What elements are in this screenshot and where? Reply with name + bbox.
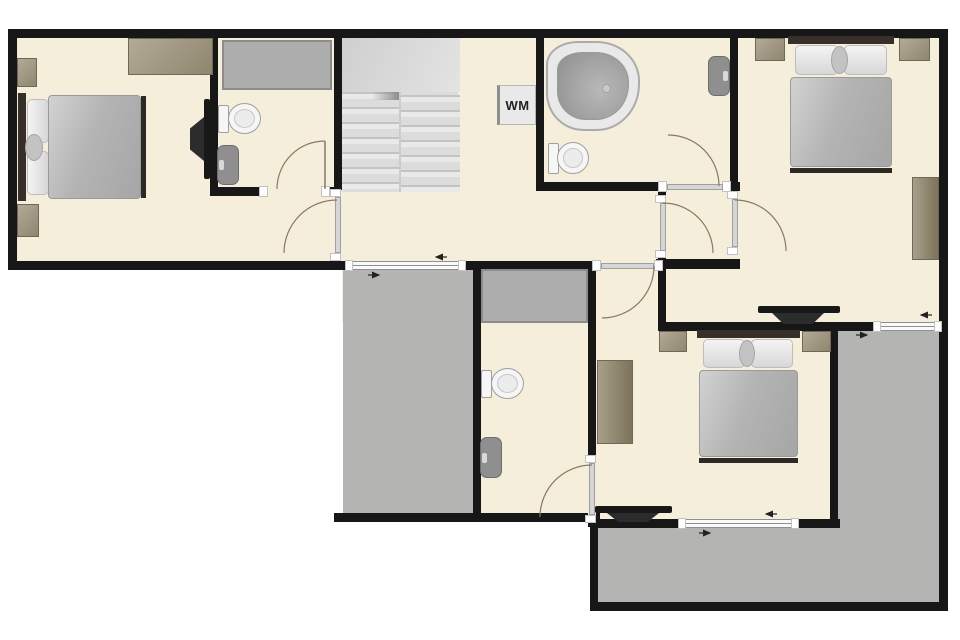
desk-bottom [597, 360, 633, 444]
door-bedroom-top-right-jamb-bottom [727, 247, 738, 255]
bed-tl-footboard [141, 96, 146, 198]
bed-tr-headboard [788, 36, 894, 44]
wall-left [8, 29, 17, 270]
terrace-center [343, 270, 473, 513]
tv-bedroom-bottom-screen [595, 506, 672, 513]
bed-top-left [18, 93, 146, 201]
wall-middle-south [334, 513, 600, 522]
nightstand-tr-2 [899, 38, 930, 61]
wall-right [939, 29, 948, 611]
door-bathtub-room-jamb-left [658, 181, 667, 192]
window-hallway [346, 261, 465, 270]
sink-bottom-tap [482, 453, 487, 463]
window-hallway-jamb-left [345, 260, 353, 271]
bed-bottom [697, 330, 800, 464]
door-bedroom-top-left-jamb-top [330, 189, 341, 197]
door-bedroom-top-right-jamb-top [727, 191, 738, 199]
toilet-bottom-bowl [491, 368, 524, 399]
sink-top-left-tap [219, 160, 224, 170]
nightstand-tr-1 [755, 38, 785, 61]
window-bedroom-top-right [875, 322, 942, 331]
nightstand-br-1 [659, 331, 687, 352]
terrace-bottom [598, 527, 939, 602]
door-bedroom-top-left-jamb-bottom [330, 253, 341, 261]
dresser-top-left [128, 38, 213, 75]
door-bathroom-top-left-jamb-right [321, 186, 330, 197]
sink-top-left [217, 145, 239, 185]
window-bedroom-top-right-jamb-right [934, 321, 942, 332]
window-bedroom-bottom [680, 519, 798, 528]
door-bathroom-top-left-jamb-left [259, 186, 268, 197]
door-vestibule-jamb-bottom [655, 250, 666, 258]
floor-plan: WM [0, 0, 960, 640]
toilet-center-bowl [557, 142, 589, 174]
wall-bedroom-bottom-east [830, 322, 838, 527]
wall-bathtub-room-east [730, 29, 738, 192]
bed-br-footboard [699, 458, 798, 463]
bed-tr-blanket [790, 77, 892, 167]
door-vestibule-jamb-top [655, 195, 666, 203]
door-bedroom-bottom-jamb-left [592, 260, 601, 271]
corner-bathtub [546, 41, 640, 131]
sink-bottom [480, 437, 502, 478]
nightstand-tl-1 [17, 58, 37, 87]
sink-center-tap [723, 71, 728, 81]
bed-br-headboard [697, 330, 800, 338]
window-bedroom-bottom-jamb-right [791, 518, 799, 529]
door-bathroom-bottom-jamb-top [585, 455, 596, 463]
shower-top-left [222, 40, 332, 90]
window-bedroom-bottom-jamb-left [678, 518, 686, 529]
bed-tr-cushion [831, 46, 848, 74]
shower-bottom [481, 269, 588, 323]
wall-terrace-bottom-west [590, 519, 598, 611]
sink-center [708, 56, 730, 96]
bed-tl-blanket [48, 95, 141, 199]
nightstand-br-2 [802, 331, 831, 352]
door-panel-vestibule [660, 203, 666, 251]
tv-bedroom-top-right-screen [758, 306, 840, 313]
bed-br-cushion [739, 340, 755, 367]
door-opening-bathroom-top-left [261, 187, 330, 196]
bed-top-right [788, 36, 894, 175]
washing-machine: WM [497, 85, 536, 125]
stair-step-shadow [372, 92, 399, 100]
door-panel-bedroom-bottom [601, 263, 654, 269]
wall-vestibule-bottom [656, 259, 740, 269]
desk-top-right [912, 177, 939, 260]
door-bathroom-bottom-jamb-bottom [585, 515, 596, 523]
door-bedroom-bottom-jamb-right [654, 260, 663, 271]
bed-br-pillow-2 [751, 339, 793, 368]
bed-br-blanket [699, 370, 798, 457]
bathtub-basin [557, 52, 629, 120]
wall-stairs-west [334, 29, 342, 190]
door-panel-bedroom-top-left [335, 197, 341, 253]
bed-tl-cushion [25, 134, 43, 161]
stair-flight-right [401, 95, 460, 192]
wall-bathtub-room-west [536, 38, 544, 191]
wall-bedroom1-bottom [8, 261, 343, 270]
bed-tr-pillow-2 [844, 45, 887, 75]
nightstand-tl-2 [17, 204, 39, 237]
window-hallway-jamb-right [458, 260, 466, 271]
wall-terrace-south [590, 602, 948, 611]
window-bedroom-top-right-jamb-left [873, 321, 881, 332]
washing-machine-label: WM [505, 99, 529, 112]
bed-tr-footboard [790, 168, 892, 173]
toilet-top-left-bowl [228, 103, 261, 134]
door-panel-bathtub-room [667, 184, 723, 190]
tv-bedroom-top-left-screen [204, 99, 210, 179]
wall-bathroom2-west [473, 261, 481, 522]
stair-flight-left [342, 92, 399, 192]
stair-landing [342, 38, 460, 92]
staircase [342, 38, 460, 192]
door-panel-bedroom-top-right [732, 199, 738, 247]
